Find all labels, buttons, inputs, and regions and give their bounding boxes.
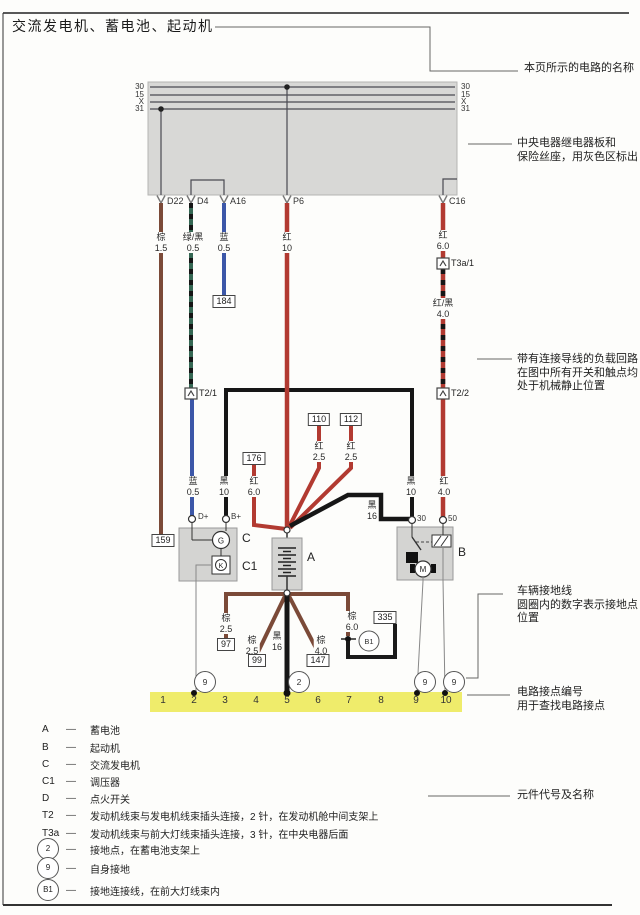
component-label-a: A — [307, 550, 315, 564]
legend-text: 交流发电机 — [90, 757, 140, 772]
connector-label-t2-2: T2/2 — [451, 388, 469, 398]
legend-dash: — — [66, 844, 90, 855]
wire-label-p6: 红10 — [281, 232, 293, 253]
pin-label-30: 30 — [417, 514, 426, 523]
terminal-label-d4: D4 — [197, 196, 209, 206]
legend-key: T2 — [34, 810, 66, 821]
annotation-panel: 中央电器继电器板和 保险丝座，用灰色区标出 — [517, 137, 638, 164]
wire-label-d4: 绿/黑0.5 — [182, 232, 205, 253]
legend-text: 调压器 — [90, 774, 120, 789]
wire-label-176: 红6.0 — [247, 476, 262, 497]
terminal-label-p6: P6 — [293, 196, 304, 206]
legend-dash: — — [66, 793, 90, 804]
legend-row-a: A — 蓄电池 — [34, 722, 120, 737]
connector-label-t3a-1: T3a/1 — [451, 258, 474, 268]
terminal-label-c16: C16 — [449, 196, 466, 206]
annotation-ground-line2: 圆圈内的数字表示接地点 — [517, 599, 638, 613]
connector-label-t2-1: T2/1 — [199, 388, 217, 398]
annotation-contact-line2: 用于查找电路接点 — [517, 700, 605, 714]
terminal-label-a16: A16 — [230, 196, 246, 206]
legend-row-ground-9: 9 — 自身接地 — [34, 857, 130, 879]
legend-dash: — — [66, 742, 90, 753]
ground-9-icon: 9 — [37, 857, 59, 879]
wiring-diagram-page: G K M 9 2 9 9 B1 交流发电机、蓄电池、起动机 30 15 X 3… — [0, 0, 640, 915]
track-number-3: 3 — [222, 695, 228, 706]
annotation-panel-line1: 中央电器继电器板和 — [517, 137, 638, 151]
annotation-load-line1: 带有连接导线的负载回路 — [517, 353, 638, 367]
legend-text: 蓄电池 — [90, 722, 120, 737]
wire-label-110: 红2.5 — [312, 441, 327, 462]
wire-label-bplus-black: 黑10 — [218, 476, 230, 497]
label-layer: 交流发电机、蓄电池、起动机 30 15 X 31 30 15 X 31 D22 … — [0, 0, 640, 915]
legend-row-c: C — 交流发电机 — [34, 757, 140, 772]
legend-dash: — — [66, 863, 90, 874]
component-label-c1: C1 — [242, 559, 257, 573]
track-number-9: 9 — [413, 695, 419, 706]
number-box-99: 99 — [248, 654, 266, 667]
legend-text: 接地点，在蓄电池支架上 — [90, 842, 200, 857]
legend-dash: — — [66, 724, 90, 735]
annotation-contact-line1: 电路接点编号 — [517, 686, 605, 700]
component-label-b: B — [458, 545, 466, 559]
legend-dash: — — [66, 759, 90, 770]
number-box-112: 112 — [340, 413, 362, 426]
number-box-97: 97 — [217, 638, 235, 651]
track-number-5: 5 — [284, 695, 290, 706]
pin-label-dplus: D+ — [198, 512, 208, 521]
page-title: 交流发电机、蓄电池、起动机 — [12, 16, 214, 36]
wire-label-gnd-97: 棕2.5 — [219, 613, 234, 634]
number-box-159: 159 — [151, 534, 174, 547]
annotation-ground: 车辆接地线 圆圈内的数字表示接地点 位置 — [517, 585, 638, 626]
terminal-label-d22: D22 — [167, 196, 184, 206]
number-box-176: 176 — [242, 452, 265, 465]
annotation-ground-line1: 车辆接地线 — [517, 585, 638, 599]
legend-key: C1 — [34, 776, 66, 787]
legend-text: 点火开关 — [90, 791, 130, 806]
legend-key: C — [34, 759, 66, 770]
number-box-147: 147 — [306, 654, 329, 667]
legend-key: D — [34, 793, 66, 804]
number-box-184: 184 — [212, 295, 235, 308]
legend-text: 起动机 — [90, 740, 120, 755]
annotation-legend-title: 元件代号及名称 — [517, 789, 594, 803]
number-box-110: 110 — [308, 413, 330, 426]
wire-label-d22: 棕1.5 — [154, 232, 169, 253]
ground-b1-icon: B1 — [37, 879, 59, 901]
legend-key: B — [34, 742, 66, 753]
wire-label-gnd-black16: 黑16 — [271, 631, 283, 652]
pin-label-50: 50 — [448, 514, 457, 523]
track-number-8: 8 — [378, 695, 384, 706]
legend-key-circle-wrap: 9 — [34, 857, 66, 879]
legend-row-b: B — 起动机 — [34, 740, 120, 755]
wire-label-dplus-blue: 蓝0.5 — [186, 476, 201, 497]
annotation-panel-line2: 保险丝座，用灰色区标出 — [517, 151, 638, 165]
wire-label-a16: 蓝0.5 — [217, 232, 232, 253]
track-number-4: 4 — [253, 695, 259, 706]
legend-row-t2: T2 — 发动机线束与发电机线束插头连接，2 针，在发动机舱中间支架上 — [34, 808, 378, 823]
wire-label-gnd-99: 棕2.5 — [245, 635, 260, 656]
wire-label-gnd-147: 棕4.0 — [314, 635, 329, 656]
wire-label-c16-mid: 红/黑4.0 — [432, 298, 455, 319]
legend-text: 自身接地 — [90, 861, 130, 876]
legend-dash: — — [66, 776, 90, 787]
track-number-6: 6 — [315, 695, 321, 706]
wire-label-50-red: 红4.0 — [437, 476, 452, 497]
legend-dash: — — [66, 810, 90, 821]
track-number-1: 1 — [160, 695, 166, 706]
legend-text: 接地连接线，在前大灯线束内 — [90, 883, 220, 898]
wire-label-gnd-b1: 棕6.0 — [345, 611, 360, 632]
annotation-load-line3: 处于机械静止位置 — [517, 380, 638, 394]
bus-label-31-right: 31 — [461, 104, 479, 113]
legend-row-c1: C1 — 调压器 — [34, 774, 120, 789]
track-number-2: 2 — [191, 695, 197, 706]
annotation-load-line2: 在图中所有开关和触点均 — [517, 367, 638, 381]
legend-key-circle-wrap: B1 — [34, 879, 66, 901]
annotation-load: 带有连接导线的负载回路 在图中所有开关和触点均 处于机械静止位置 — [517, 353, 638, 394]
annotation-ground-line3: 位置 — [517, 612, 638, 626]
legend-row-b1: B1 — 接地连接线，在前大灯线束内 — [34, 879, 220, 901]
number-box-335: 335 — [373, 611, 396, 624]
legend-row-d: D — 点火开关 — [34, 791, 130, 806]
legend-key: A — [34, 724, 66, 735]
pin-label-bplus: B+ — [231, 512, 241, 521]
wire-label-black16: 黑16 — [366, 500, 378, 521]
track-number-7: 7 — [346, 695, 352, 706]
legend-text: 发动机线束与发电机线束插头连接，2 针，在发动机舱中间支架上 — [90, 808, 378, 823]
wire-label-30-black: 黑10 — [405, 476, 417, 497]
annotation-contact: 电路接点编号 用于查找电路接点 — [517, 686, 605, 713]
track-number-10: 10 — [440, 695, 451, 706]
component-label-c: C — [242, 531, 251, 545]
legend-dash: — — [66, 885, 90, 896]
wire-label-112: 红2.5 — [344, 441, 359, 462]
wire-label-c16-upper: 红6.0 — [436, 230, 451, 251]
annotation-circuit-name: 本页所示的电路的名称 — [524, 62, 634, 76]
bus-label-31-left: 31 — [126, 104, 144, 113]
